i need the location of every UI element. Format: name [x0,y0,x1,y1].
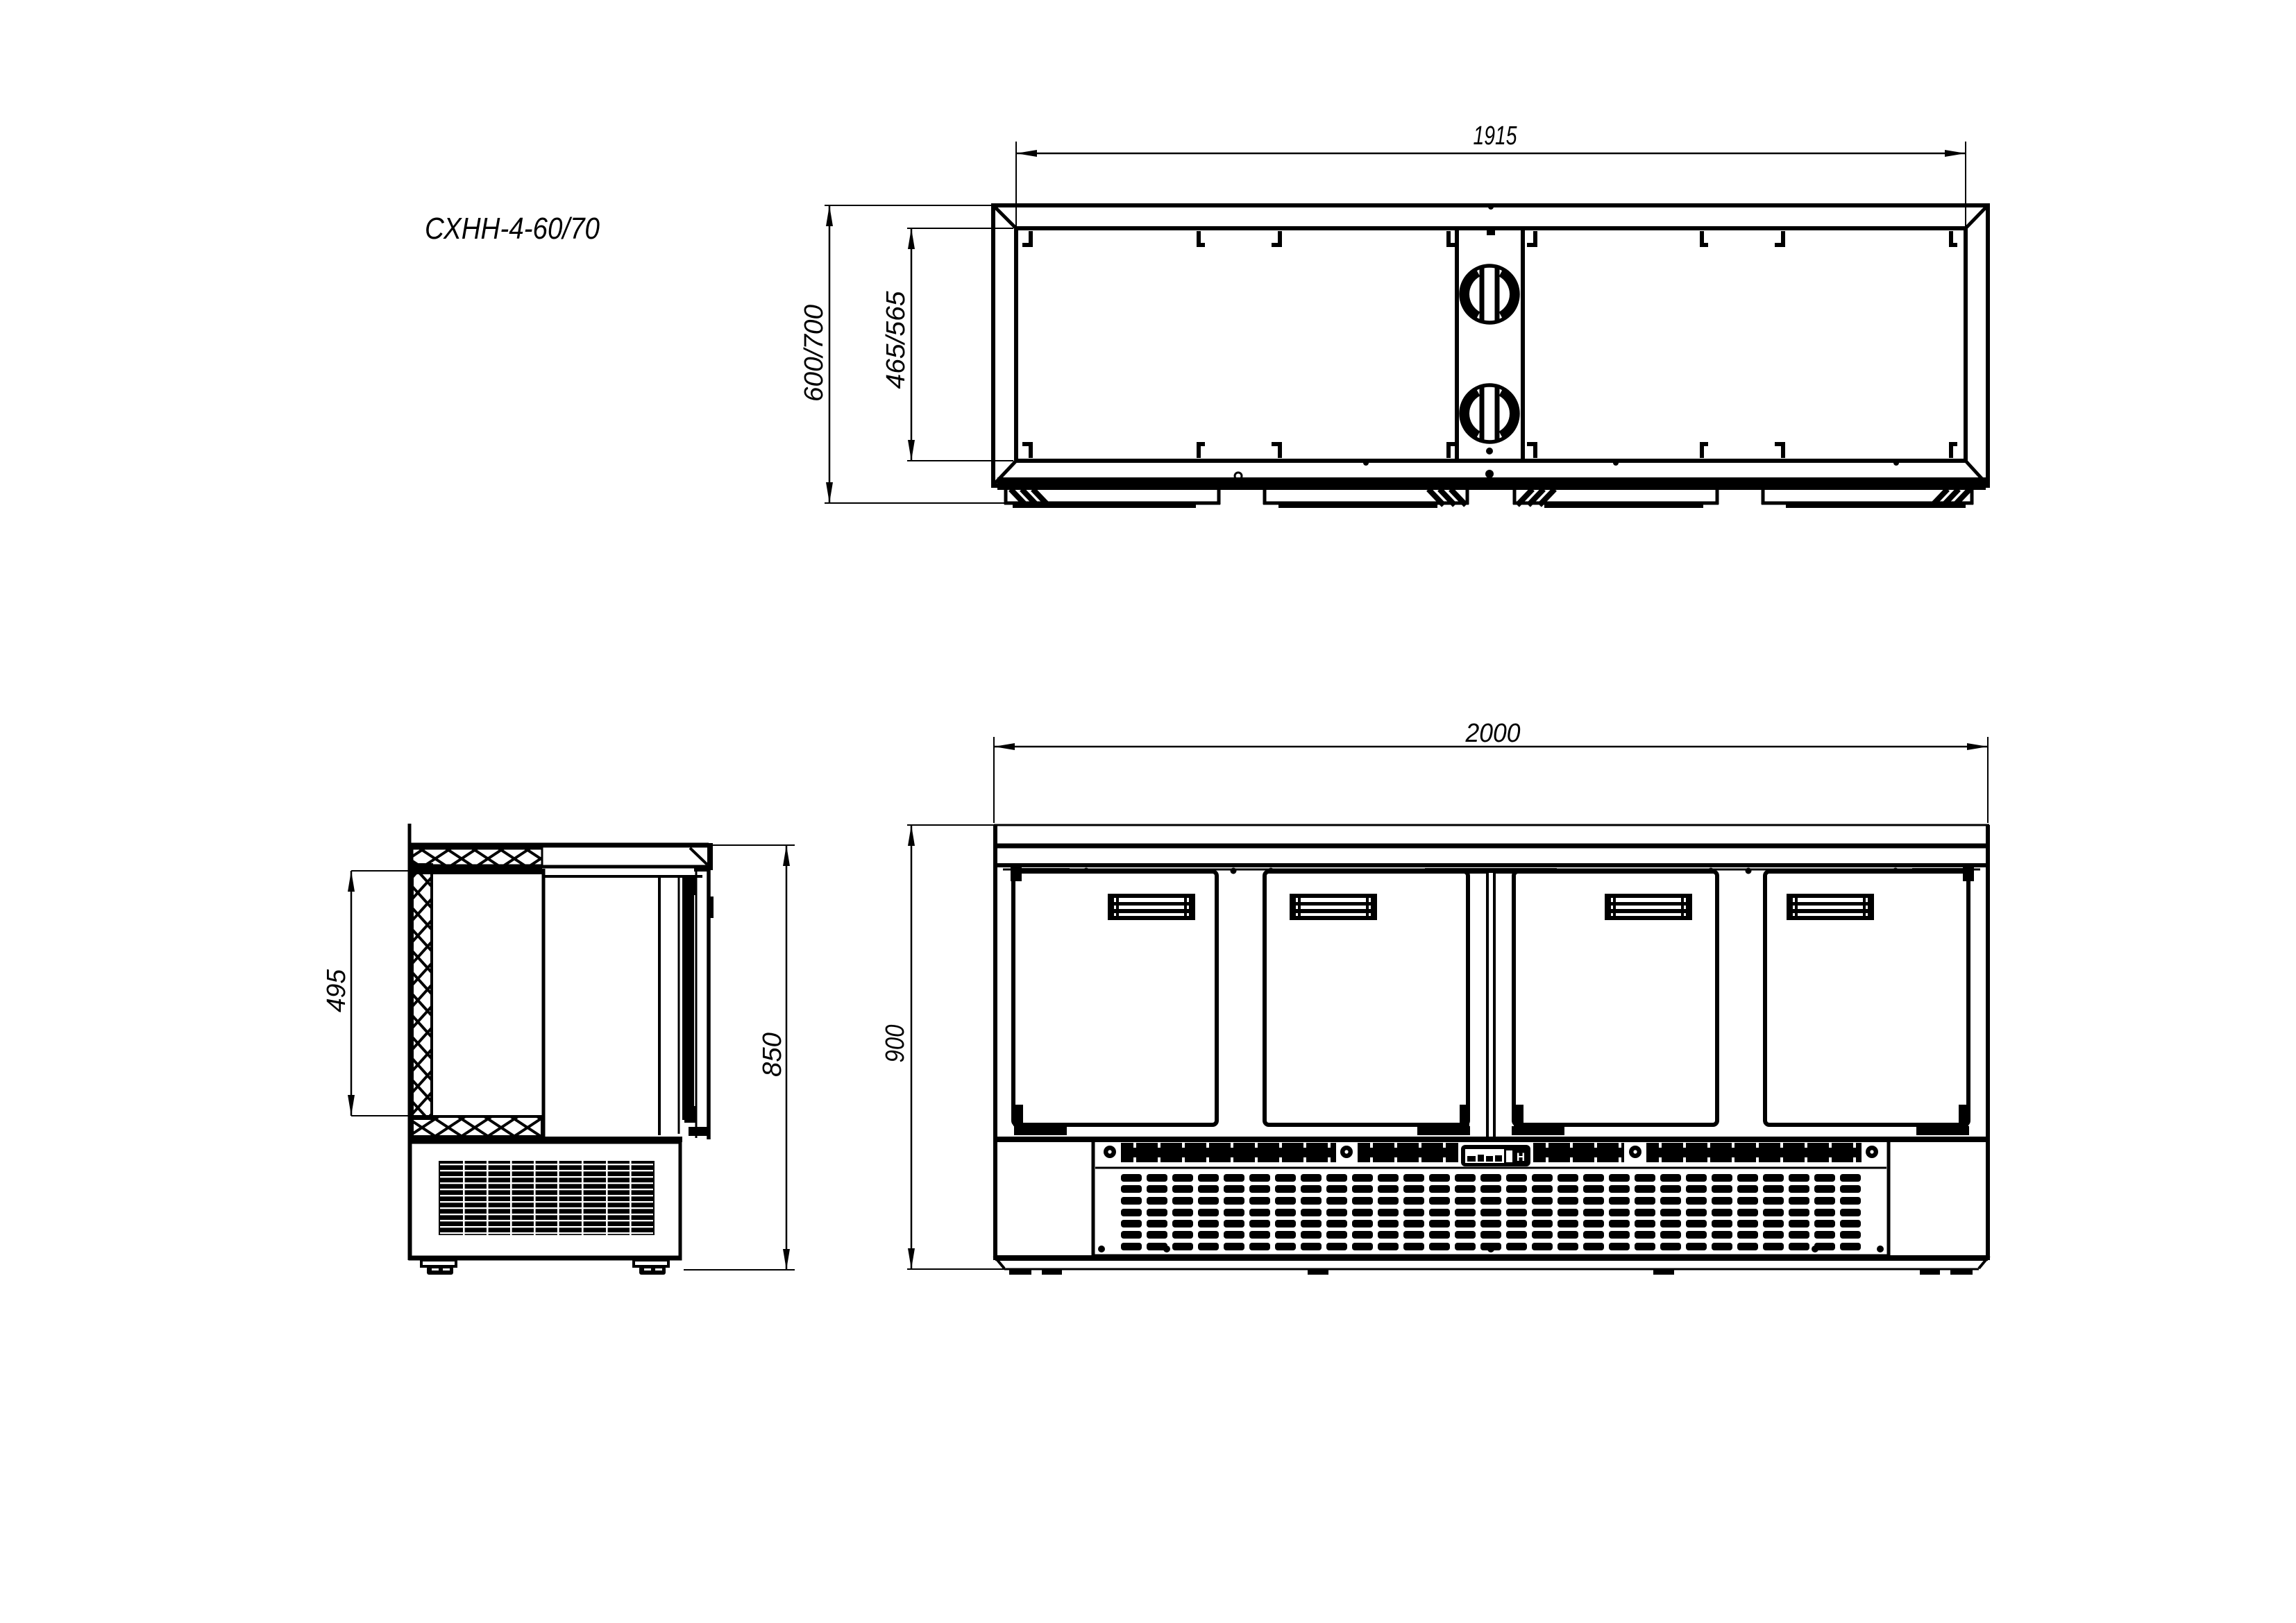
svg-text:1915: 1915 [1474,121,1518,151]
svg-text:850: 850 [758,1033,787,1077]
svg-text:465/565: 465/565 [881,291,911,389]
svg-text:2000: 2000 [1465,719,1521,748]
svg-text:600/700: 600/700 [800,305,829,402]
svg-text:СХНН-4-60/70: СХНН-4-60/70 [425,212,600,246]
svg-text:900: 900 [881,1025,910,1063]
svg-text:495: 495 [322,969,351,1012]
svg-text:H: H [1517,1150,1525,1164]
